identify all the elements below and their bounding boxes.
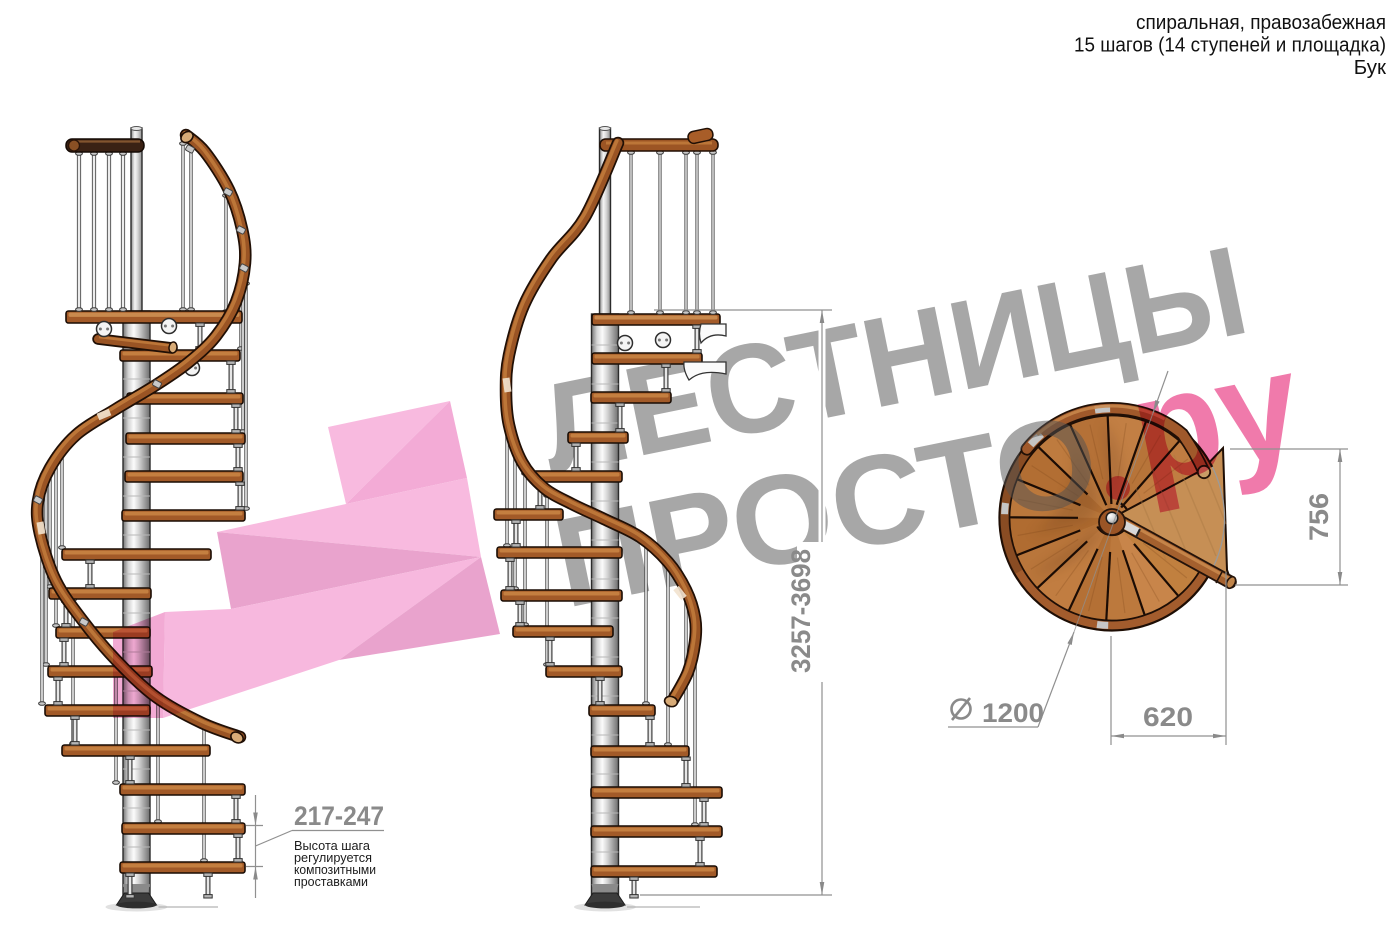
svg-text:620: 620 <box>1143 702 1193 732</box>
svg-text:ру: ру <box>1117 317 1314 515</box>
svg-text:1200: 1200 <box>982 698 1044 728</box>
svg-text:15 шагов (14 ступеней и площад: 15 шагов (14 ступеней и площадка) <box>1074 34 1386 57</box>
svg-text:Бук: Бук <box>1354 56 1387 79</box>
svg-text:проставками: проставками <box>294 874 368 889</box>
svg-text:756: 756 <box>1304 493 1334 541</box>
svg-text:217-247: 217-247 <box>294 801 384 831</box>
svg-text:3257-3698: 3257-3698 <box>786 549 816 673</box>
svg-text:спиральная, правозабежная: спиральная, правозабежная <box>1136 11 1386 34</box>
